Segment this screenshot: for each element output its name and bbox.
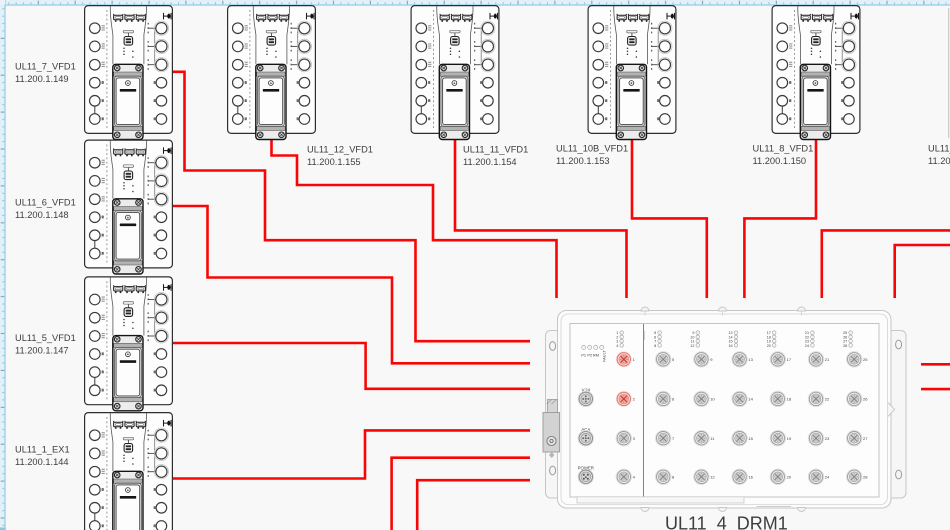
svg-text:11.200.1.147: 11.200.1.147 [15,346,69,356]
svg-text:20: 20 [767,344,771,348]
svg-text:28: 28 [863,475,868,480]
svg-text:4: 4 [616,344,618,348]
svg-text:17: 17 [787,357,792,362]
svg-text:UL11_8_VFD1: UL11_8_VFD1 [753,144,814,154]
svg-text:P2: P2 [587,352,592,357]
svg-text:24: 24 [805,344,809,348]
svg-text:UL11_6_VFD1: UL11_6_VFD1 [15,198,76,208]
svg-text:26: 26 [863,397,868,402]
svg-text:19: 19 [787,436,792,441]
svg-text:11.200.1.149: 11.200.1.149 [15,74,69,84]
svg-text:RM: RM [593,352,599,357]
svg-text:24: 24 [825,475,830,480]
svg-text:UL11_9_VFD1: UL11_9_VFD1 [928,144,950,154]
svg-text:8: 8 [654,344,656,348]
svg-text:20: 20 [787,475,792,480]
svg-text:11.200.1.151: 11.200.1.151 [928,156,950,166]
svg-text:P1: P1 [581,352,586,357]
svg-text:FAULT: FAULT [601,350,606,362]
svg-text:11.200.1.144: 11.200.1.144 [15,457,69,467]
svg-text:13: 13 [748,357,753,362]
svg-text:10: 10 [710,397,715,402]
svg-text:15: 15 [748,436,753,441]
svg-text:11.200.1.155: 11.200.1.155 [307,157,361,167]
svg-text:UL11_5_VFD1: UL11_5_VFD1 [15,333,76,343]
svg-text:11.200.1.148: 11.200.1.148 [15,210,69,220]
svg-text:12: 12 [690,344,694,348]
svg-text:12: 12 [710,475,715,480]
svg-text:UL11_12_VFD1: UL11_12_VFD1 [307,144,373,154]
svg-text:UL11_11_VFD1: UL11_11_VFD1 [463,144,528,154]
svg-text:22: 22 [825,397,830,402]
svg-text:14: 14 [748,397,753,402]
svg-text:UL11_4_DRM1: UL11_4_DRM1 [665,514,788,530]
svg-text:21: 21 [825,357,830,362]
svg-text:16: 16 [728,344,732,348]
svg-text:16: 16 [748,475,753,480]
svg-text:11.200.1.150: 11.200.1.150 [753,156,807,166]
svg-text:27: 27 [863,436,868,441]
svg-text:UL11_7_VFD1: UL11_7_VFD1 [15,61,76,71]
svg-text:25: 25 [863,357,868,362]
svg-text:UL11_1_EX1: UL11_1_EX1 [15,445,70,455]
svg-text:18: 18 [787,397,792,402]
svg-text:28: 28 [843,344,847,348]
svg-text:UL11_10B_VFD1: UL11_10B_VFD1 [556,144,628,154]
svg-text:23: 23 [825,436,830,441]
svg-text:11.200.1.153: 11.200.1.153 [556,156,610,166]
svg-text:11.200.1.154: 11.200.1.154 [463,157,517,167]
